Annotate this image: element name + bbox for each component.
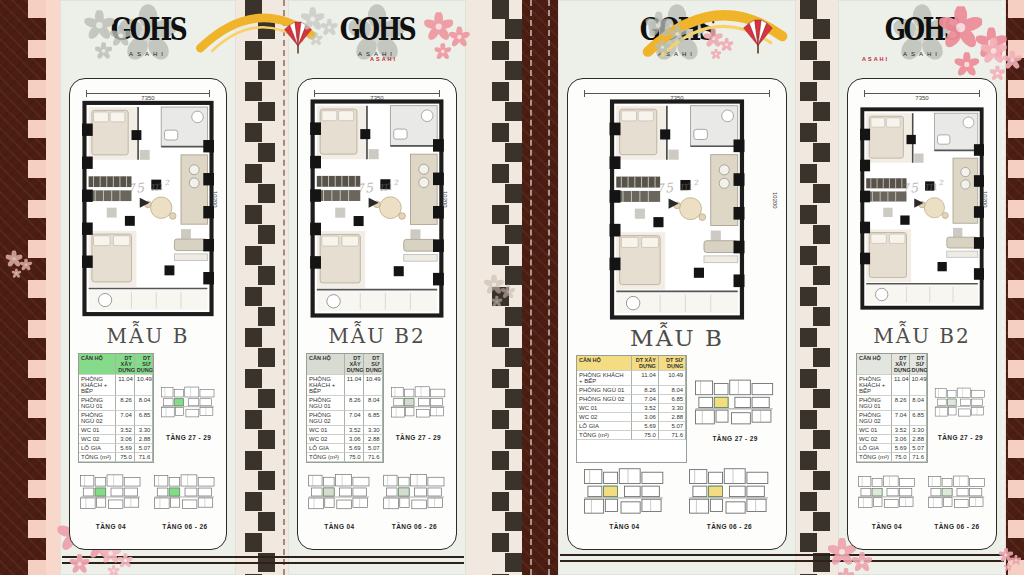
table-header-cell: DT SỬ DỤNG <box>910 354 928 375</box>
floor-label: TẦNG 27 - 29 <box>712 435 757 442</box>
zipper-divider-icon <box>492 0 522 575</box>
table-cell: 75.0 <box>345 453 364 462</box>
table-cell: PHÒNG NGỦ 02 <box>79 411 116 426</box>
table-row: WC 013.523.30 <box>307 426 383 435</box>
table-header-cell: CĂN HỘ <box>79 354 116 375</box>
floor-label: TẦNG 27 - 29 <box>166 434 211 441</box>
table-cell: LÔ GIA <box>79 444 116 453</box>
floorplan-card: 7350 10200 75 m² MẪU B2 CĂN HỘ DT XÂY DỰ… <box>847 78 997 550</box>
table-cell: PHÒNG NGỦ 01 <box>307 396 345 411</box>
table-cell: WC 02 <box>307 435 345 444</box>
table-cell: 7.04 <box>345 411 364 426</box>
card-title: MẪU B <box>78 319 218 353</box>
table-cell: 8.26 <box>892 396 910 411</box>
area-table: CĂN HỘ DT XÂY DỰNG DT SỬ DỤNG PHÒNG KHÁC… <box>306 353 384 463</box>
table-cell: 10.49 <box>910 375 928 396</box>
table-cell: PHÒNG NGỦ 02 <box>577 395 632 404</box>
table-cell: WC 01 <box>307 426 345 435</box>
table-cell: WC 02 <box>577 413 632 422</box>
table-header: CĂN HỘ DT XÂY DỰNG DT SỬ DỤNG <box>577 356 686 371</box>
card-title: MẪU B <box>576 321 778 355</box>
floor-label: TẦNG 06 - 26 <box>392 523 437 530</box>
table-row: WC 023.062.88 <box>307 435 383 444</box>
dimension-top: 7350 <box>864 85 980 98</box>
table-row: PHÒNG NGỦ 027.046.85 <box>79 411 153 426</box>
floor-plate-diagram <box>389 376 448 432</box>
floor-plate-block: TẦNG 27 - 29 <box>389 353 448 463</box>
table-cell: PHÒNG KHÁCH + BẾP <box>857 375 892 396</box>
table-cell: PHÒNG NGỦ 01 <box>79 396 116 411</box>
table-cell: 8.26 <box>116 396 135 411</box>
table-cell: 8.04 <box>135 396 154 411</box>
table-cell: 2.88 <box>364 435 383 444</box>
table-cell: WC 01 <box>79 426 116 435</box>
floor-plate-block: TẦNG 06 - 26 <box>681 467 778 543</box>
table-cell: WC 01 <box>857 426 892 435</box>
floor-label: TẦNG 27 - 29 <box>396 434 441 441</box>
floor-label: TẦNG 04 <box>324 523 354 530</box>
floor-label: TẦNG 04 <box>609 523 639 530</box>
table-cell: 8.04 <box>910 396 928 411</box>
floor-plate-block: TẦNG 27 - 29 <box>692 355 778 463</box>
floor-label: TẦNG 06 - 26 <box>162 523 207 530</box>
left-film-blocks <box>28 0 46 575</box>
table-header: CĂN HỘ DT XÂY DỰNG DT SỬ DỤNG <box>79 354 153 375</box>
table-row: PHÒNG KHÁCH + BẾP11.0410.49 <box>307 375 383 396</box>
table-row: WC 023.062.88 <box>79 435 153 444</box>
table-cell: 3.52 <box>345 426 364 435</box>
table-cell: WC 02 <box>79 435 116 444</box>
table-cell: 3.06 <box>116 435 135 444</box>
table-cell: TỔNG (m²) <box>307 453 345 462</box>
table-row: TỔNG (m²)75.071.6 <box>79 453 153 462</box>
floor-plate-block: TẦNG 27 - 29 <box>933 353 988 463</box>
table-cell: WC 02 <box>857 435 892 444</box>
table-cell: PHÒNG KHÁCH + BẾP <box>307 375 345 396</box>
floor-plate-block: TẦNG 06 - 26 <box>152 467 218 543</box>
table-row: PHÒNG NGỦ 027.046.85 <box>857 411 927 426</box>
floor-plate-diagram <box>381 467 448 521</box>
table-cell: 71.6 <box>910 453 928 462</box>
floor-plate-block: TẦNG 04 <box>856 467 918 543</box>
table-row: LÔ GIA5.695.07 <box>577 422 686 431</box>
dimension-side: 10200 <box>442 191 448 208</box>
table-row: WC 013.523.30 <box>857 426 927 435</box>
table-cell: 3.06 <box>892 435 910 444</box>
table-cell: 5.69 <box>116 444 135 453</box>
area-table: CĂN HỘ DT XÂY DỰNG DT SỬ DỤNG PHÒNG KHÁC… <box>576 355 687 463</box>
floor-label: TẦNG 04 <box>872 523 902 530</box>
table-cell: 6.85 <box>364 411 383 426</box>
table-cell: PHÒNG KHÁCH + BẾP <box>79 375 116 396</box>
table-cell: PHÒNG NGỦ 01 <box>857 396 892 411</box>
table-cell: 3.30 <box>910 426 928 435</box>
table-cell: LÔ GIA <box>307 444 345 453</box>
table-cell: TỔNG (m²) <box>577 431 632 440</box>
table-row: LÔ GIA5.695.07 <box>307 444 383 453</box>
dashed-line <box>530 0 532 575</box>
floor-plate-block: TẦNG 04 <box>576 467 673 543</box>
table-row: PHÒNG NGỦ 018.268.04 <box>857 396 927 411</box>
apartment-floor-plan <box>310 99 444 318</box>
floor-plate-diagram <box>692 377 778 433</box>
table-cell: 3.06 <box>345 435 364 444</box>
table-cell: TỔNG (m²) <box>79 453 116 462</box>
table-cell: 11.04 <box>632 371 659 386</box>
dimension-top: 7350 <box>584 85 770 98</box>
table-header-cell: DT SỬ DỤNG <box>364 354 383 375</box>
floor-plate-diagram <box>159 376 218 432</box>
table-cell: 5.69 <box>632 422 659 431</box>
floor-plate-diagram <box>152 467 218 521</box>
table-row: PHÒNG NGỦ 018.268.04 <box>307 396 383 411</box>
table-cell: 7.04 <box>892 411 910 426</box>
table-row: PHÒNG NGỦ 018.268.04 <box>79 396 153 411</box>
table-body: PHÒNG KHÁCH + BẾP11.0410.49PHÒNG NGỦ 018… <box>577 371 686 440</box>
table-cell: 2.88 <box>910 435 928 444</box>
dimension-side: 10200 <box>212 191 218 208</box>
table-cell: 5.69 <box>892 444 910 453</box>
floor-label: TẦNG 04 <box>96 523 126 530</box>
table-row: PHÒNG KHÁCH + BẾP11.0410.49 <box>79 375 153 396</box>
table-cell: PHÒNG KHÁCH + BẾP <box>577 371 632 386</box>
table-row: TỔNG (m²)75.071.6 <box>577 431 686 440</box>
table-cell: LÔ GIA <box>857 444 892 453</box>
table-row: WC 013.523.30 <box>577 404 686 413</box>
apartment-floor-plan <box>860 99 984 318</box>
floor-plate-block: TẦNG 06 - 26 <box>381 467 448 543</box>
table-cell: 7.04 <box>116 411 135 426</box>
floor-plate-block: TẦNG 04 <box>78 467 144 543</box>
table-row: WC 023.062.88 <box>857 435 927 444</box>
floor-plate-block: TẦNG 27 - 29 <box>159 353 218 463</box>
floor-plate-diagram <box>306 467 373 521</box>
table-cell: 5.07 <box>910 444 928 453</box>
table-cell: 10.49 <box>135 375 154 396</box>
floorplan-card: 7350 10200 75 m² MẪU B CĂN HỘ DT XÂY DỰN… <box>69 78 227 550</box>
table-cell: 3.52 <box>892 426 910 435</box>
floor-label: TẦNG 06 - 26 <box>707 523 752 530</box>
table-row: PHÒNG NGỦ 027.046.85 <box>307 411 383 426</box>
table-cell: 8.04 <box>659 386 686 395</box>
table-header-cell: DT XÂY DỰNG <box>892 354 910 375</box>
table-header-cell: CĂN HỘ <box>857 354 892 375</box>
table-header-cell: DT SỬ DỤNG <box>659 356 686 371</box>
table-row: TỔNG (m²)75.071.6 <box>307 453 383 462</box>
table-row: WC 013.523.30 <box>79 426 153 435</box>
table-row: PHÒNG KHÁCH + BẾP11.0410.49 <box>577 371 686 386</box>
table-row: LÔ GIA5.695.07 <box>857 444 927 453</box>
card-title: MẪU B2 <box>856 319 988 353</box>
table-row: WC 023.062.88 <box>577 413 686 422</box>
table-cell: 71.6 <box>659 431 686 440</box>
zipper-divider-icon <box>800 0 830 575</box>
dimension-side: 10200 <box>772 192 778 209</box>
table-cell: 5.69 <box>345 444 364 453</box>
table-cell: PHÒNG NGỦ 01 <box>577 386 632 395</box>
table-header-cell: CĂN HỘ <box>307 354 345 375</box>
table-cell: 2.88 <box>659 413 686 422</box>
table-cell: 75.0 <box>632 431 659 440</box>
table-cell: 5.07 <box>135 444 154 453</box>
table-row: TỔNG (m²)75.071.6 <box>857 453 927 462</box>
table-header-cell: DT XÂY DỰNG <box>345 354 364 375</box>
table-cell: 6.85 <box>659 395 686 404</box>
apartment-floor-plan <box>580 99 774 320</box>
dimension-side: 10200 <box>982 191 988 208</box>
table-cell: PHÒNG NGỦ 02 <box>857 411 892 426</box>
table-cell: 11.04 <box>892 375 910 396</box>
table-cell: 6.85 <box>910 411 928 426</box>
table-cell: 10.49 <box>659 371 686 386</box>
table-cell: 7.04 <box>632 395 659 404</box>
table-cell: 3.52 <box>632 404 659 413</box>
table-cell: PHÒNG NGỦ 02 <box>307 411 345 426</box>
table-cell: 71.6 <box>364 453 383 462</box>
table-row: LÔ GIA5.695.07 <box>79 444 153 453</box>
table-header-cell: DT XÂY DỰNG <box>116 354 135 375</box>
table-cell: 3.52 <box>116 426 135 435</box>
floorplan-card: 7350 10200 75 m² MẪU B CĂN HỘ DT XÂY DỰN… <box>567 78 787 550</box>
table-cell: 11.04 <box>345 375 364 396</box>
table-cell: 3.30 <box>659 404 686 413</box>
table-cell: 5.07 <box>659 422 686 431</box>
area-table: CĂN HỘ DT XÂY DỰNG DT SỬ DỤNG PHÒNG KHÁC… <box>78 353 154 463</box>
table-cell: 10.49 <box>364 375 383 396</box>
table-cell: TỔNG (m²) <box>857 453 892 462</box>
table-cell: 6.85 <box>135 411 154 426</box>
table-header: CĂN HỘ DT XÂY DỰNG DT SỬ DỤNG <box>857 354 927 375</box>
right-film-blocks <box>1008 0 1024 575</box>
table-body: PHÒNG KHÁCH + BẾP11.0410.49PHÒNG NGỦ 018… <box>79 375 153 462</box>
zipper-divider-icon <box>245 0 275 575</box>
table-cell: 3.06 <box>632 413 659 422</box>
floor-plate-block: TẦNG 06 - 26 <box>926 467 988 543</box>
dimension-top: 7350 <box>86 85 210 98</box>
table-cell: WC 01 <box>577 404 632 413</box>
apartment-floor-plan <box>82 99 214 318</box>
floor-plate-diagram <box>926 467 988 521</box>
table-cell: 3.30 <box>364 426 383 435</box>
floorplan-card: 7350 10200 75 m² MẪU B2 CĂN HỘ DT XÂY DỰ… <box>297 78 457 550</box>
floor-plate-diagram <box>78 467 144 521</box>
table-row: PHÒNG NGỦ 027.046.85 <box>577 395 686 404</box>
card-title: MẪU B2 <box>306 319 448 353</box>
dashed-line <box>548 0 550 575</box>
floor-label: TẦNG 27 - 29 <box>938 434 983 441</box>
floor-plate-diagram <box>933 376 988 432</box>
table-body: PHÒNG KHÁCH + BẾP11.0410.49PHÒNG NGỦ 018… <box>307 375 383 462</box>
floor-label: TẦNG 06 - 26 <box>934 523 979 530</box>
table-cell: 8.04 <box>364 396 383 411</box>
table-cell: 8.26 <box>632 386 659 395</box>
table-row: PHÒNG NGỦ 018.268.04 <box>577 386 686 395</box>
table-cell: 71.6 <box>135 453 154 462</box>
dashed-line <box>283 0 285 575</box>
table-cell: 3.30 <box>135 426 154 435</box>
floor-plate-diagram <box>576 467 673 521</box>
floor-plate-diagram <box>856 467 918 521</box>
table-cell: LÔ GIA <box>577 422 632 431</box>
floor-plate-diagram <box>681 467 778 521</box>
table-row: PHÒNG KHÁCH + BẾP11.0410.49 <box>857 375 927 396</box>
table-header-cell: DT XÂY DỰNG <box>632 356 659 371</box>
table-cell: 2.88 <box>135 435 154 444</box>
table-cell: 75.0 <box>116 453 135 462</box>
dimension-top: 7350 <box>314 85 440 98</box>
table-header-cell: DT SỬ DỤNG <box>135 354 154 375</box>
table-body: PHÒNG KHÁCH + BẾP11.0410.49PHÒNG NGỦ 018… <box>857 375 927 462</box>
area-table: CĂN HỘ DT XÂY DỰNG DT SỬ DỤNG PHÒNG KHÁC… <box>856 353 928 463</box>
table-header: CĂN HỘ DT XÂY DỰNG DT SỬ DỤNG <box>307 354 383 375</box>
floor-plate-block: TẦNG 04 <box>306 467 373 543</box>
table-header-cell: CĂN HỘ <box>577 356 632 371</box>
table-cell: 8.26 <box>345 396 364 411</box>
table-cell: 11.04 <box>116 375 135 396</box>
table-cell: 5.07 <box>364 444 383 453</box>
table-cell: 75.0 <box>892 453 910 462</box>
